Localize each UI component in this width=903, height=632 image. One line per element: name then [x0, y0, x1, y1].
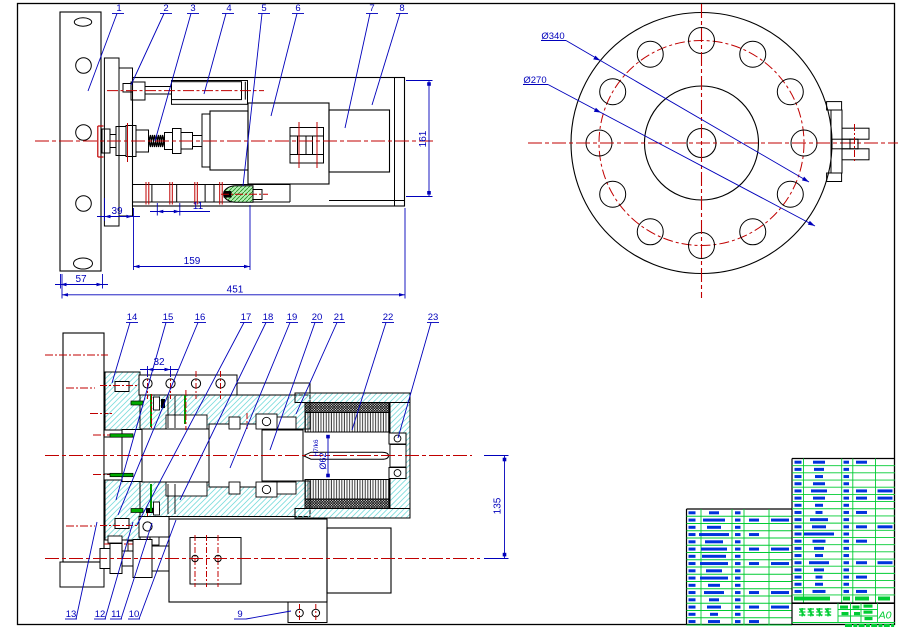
svg-text:4: 4	[226, 3, 231, 14]
svg-text:451: 451	[227, 285, 244, 296]
svg-text:1: 1	[116, 3, 121, 14]
svg-text:11: 11	[111, 609, 121, 620]
svg-text:39: 39	[111, 206, 123, 217]
svg-text:16: 16	[195, 312, 206, 323]
svg-text:23: 23	[428, 312, 439, 323]
svg-text:12: 12	[95, 609, 106, 620]
svg-text:17: 17	[241, 312, 252, 323]
svg-text:9: 9	[237, 609, 242, 620]
svg-text:159: 159	[184, 256, 201, 267]
svg-text:15: 15	[163, 312, 174, 323]
svg-text:135: 135	[493, 497, 504, 514]
svg-text:22: 22	[383, 312, 394, 323]
svg-text:6: 6	[295, 3, 300, 14]
svg-text:5: 5	[261, 3, 266, 14]
svg-text:7: 7	[369, 3, 374, 14]
svg-text:2: 2	[163, 3, 168, 14]
svg-text:18: 18	[263, 312, 274, 323]
svg-text:10: 10	[129, 609, 140, 620]
svg-text:H7/k6: H7/k6	[313, 439, 320, 456]
svg-text:8: 8	[399, 3, 404, 14]
svg-text:14: 14	[127, 312, 138, 323]
svg-text:20: 20	[312, 312, 323, 323]
svg-text:13: 13	[66, 609, 77, 620]
svg-text:19: 19	[287, 312, 298, 323]
svg-text:11: 11	[193, 201, 204, 212]
svg-text:57: 57	[75, 274, 87, 285]
svg-text:A0: A0	[878, 610, 892, 622]
svg-text:161: 161	[418, 130, 429, 147]
svg-text:21: 21	[334, 312, 345, 323]
svg-text:3: 3	[190, 3, 195, 14]
